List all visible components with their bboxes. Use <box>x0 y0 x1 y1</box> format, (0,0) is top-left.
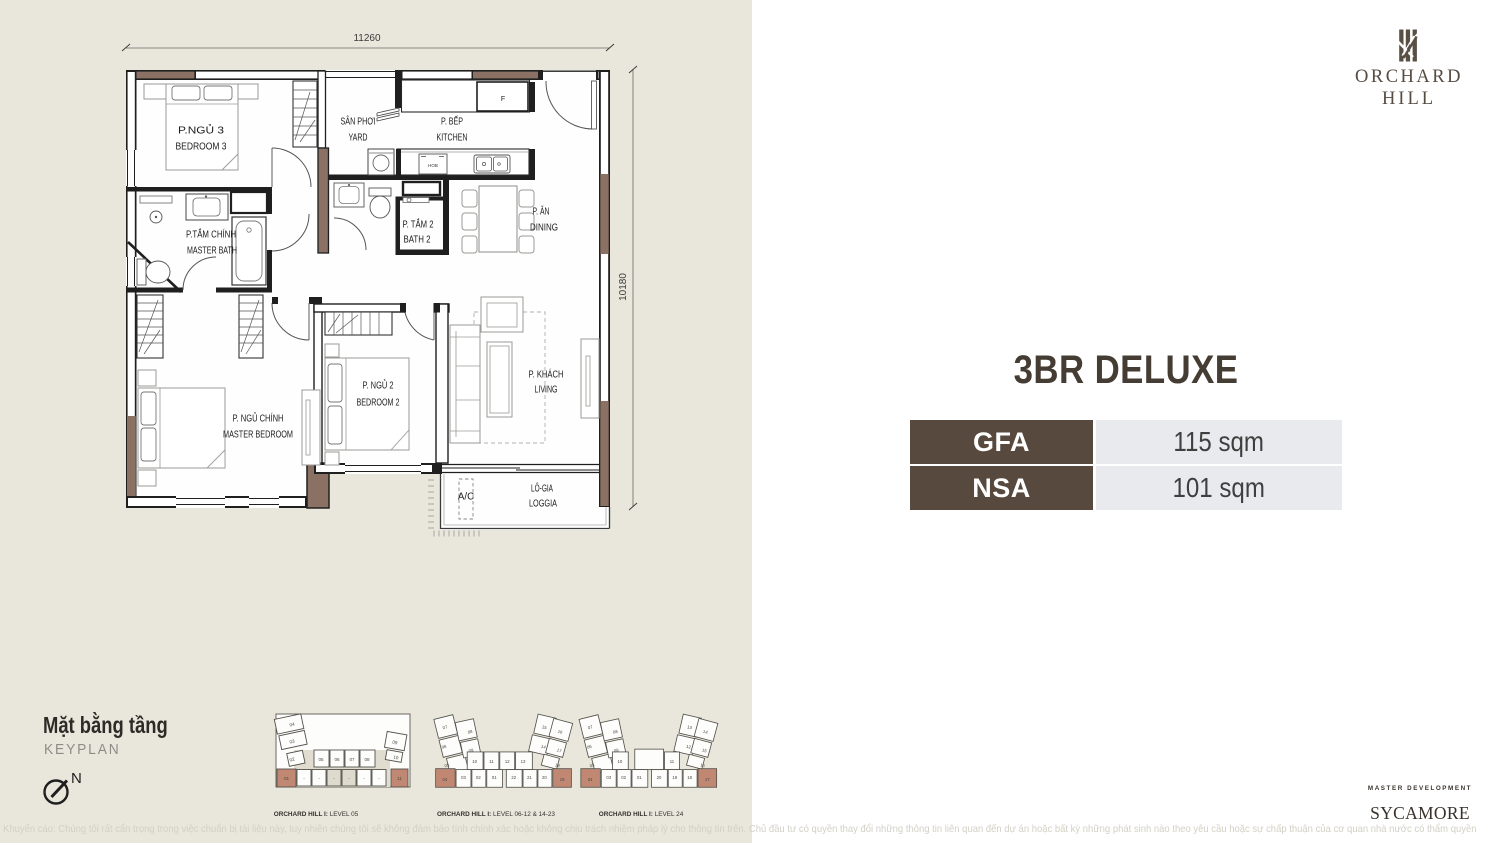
svg-text:P.TẮM CHÍNH: P.TẮM CHÍNH <box>186 230 236 241</box>
svg-text:04: 04 <box>588 777 593 782</box>
svg-text:ORCHARD HILL I: LEVEL 06-12 &: ORCHARD HILL I: LEVEL 06-12 & 14-23 <box>437 811 555 818</box>
svg-text:02: 02 <box>621 775 626 780</box>
svg-text:05: 05 <box>318 757 324 762</box>
svg-text:P.NGỦ 3: P.NGỦ 3 <box>178 125 224 137</box>
svg-text:F: F <box>501 96 505 103</box>
svg-text:07: 07 <box>349 757 355 762</box>
svg-text:P. BẾP: P. BẾP <box>441 117 463 128</box>
svg-text:22: 22 <box>511 775 516 780</box>
svg-text:HOB: HOB <box>428 163 438 168</box>
svg-text:YARD: YARD <box>349 133 368 144</box>
svg-text:11: 11 <box>397 776 402 781</box>
svg-text:MASTER BATH: MASTER BATH <box>187 246 237 257</box>
svg-text:P. NGỦ CHÍNH: P. NGỦ CHÍNH <box>233 413 284 425</box>
svg-text:A/C: A/C <box>458 492 474 503</box>
svg-text:ORCHARD HILL I: LEVEL 05: ORCHARD HILL I: LEVEL 05 <box>274 811 359 818</box>
svg-text:11: 11 <box>670 759 675 764</box>
svg-text:SÂN PHƠI: SÂN PHƠI <box>341 117 376 128</box>
svg-text:20: 20 <box>657 775 662 780</box>
svg-text:01: 01 <box>492 775 497 780</box>
svg-text:17: 17 <box>705 777 710 782</box>
svg-text:P. TẮM 2: P. TẮM 2 <box>403 220 434 231</box>
svg-text:LOGGIA: LOGGIA <box>529 499 557 510</box>
svg-text:ORCHARD HILL I: LEVEL 24: ORCHARD HILL I: LEVEL 24 <box>599 811 684 818</box>
svg-text:P. NGỦ 2: P. NGỦ 2 <box>363 380 394 392</box>
svg-text:10: 10 <box>618 759 623 764</box>
svg-text:DINING: DINING <box>530 223 558 234</box>
svg-text:P. ĂN: P. ĂN <box>533 207 550 218</box>
svg-text:02: 02 <box>476 775 481 780</box>
svg-text:06: 06 <box>334 757 340 762</box>
svg-text:BEDROOM 2: BEDROOM 2 <box>357 398 400 409</box>
svg-text:19: 19 <box>672 775 677 780</box>
svg-text:BATH 2: BATH 2 <box>404 235 431 246</box>
svg-text:BEDROOM 3: BEDROOM 3 <box>176 142 227 153</box>
svg-text:18: 18 <box>687 775 692 780</box>
svg-text:20: 20 <box>542 775 547 780</box>
svg-text:19: 19 <box>560 777 565 782</box>
svg-text:01: 01 <box>284 776 290 781</box>
svg-text:N: N <box>71 770 82 787</box>
svg-text:21: 21 <box>527 775 532 780</box>
svg-text:10: 10 <box>472 759 477 764</box>
svg-text:KITCHEN: KITCHEN <box>437 133 468 144</box>
svg-text:11260: 11260 <box>353 33 381 44</box>
svg-text:08: 08 <box>364 757 370 762</box>
svg-text:04: 04 <box>443 777 448 782</box>
svg-text:10180: 10180 <box>618 273 629 301</box>
svg-text:MASTER BEDROOM: MASTER BEDROOM <box>223 430 293 441</box>
svg-text:01: 01 <box>637 775 642 780</box>
svg-text:12: 12 <box>505 759 510 764</box>
svg-text:LÔ-GIA: LÔ-GIA <box>531 484 553 495</box>
svg-text:03: 03 <box>606 775 611 780</box>
svg-text:03: 03 <box>461 775 466 780</box>
svg-text:13: 13 <box>521 759 526 764</box>
svg-text:LIVING: LIVING <box>535 385 558 396</box>
svg-text:11: 11 <box>489 759 494 764</box>
svg-text:P. KHÁCH: P. KHÁCH <box>529 370 564 381</box>
